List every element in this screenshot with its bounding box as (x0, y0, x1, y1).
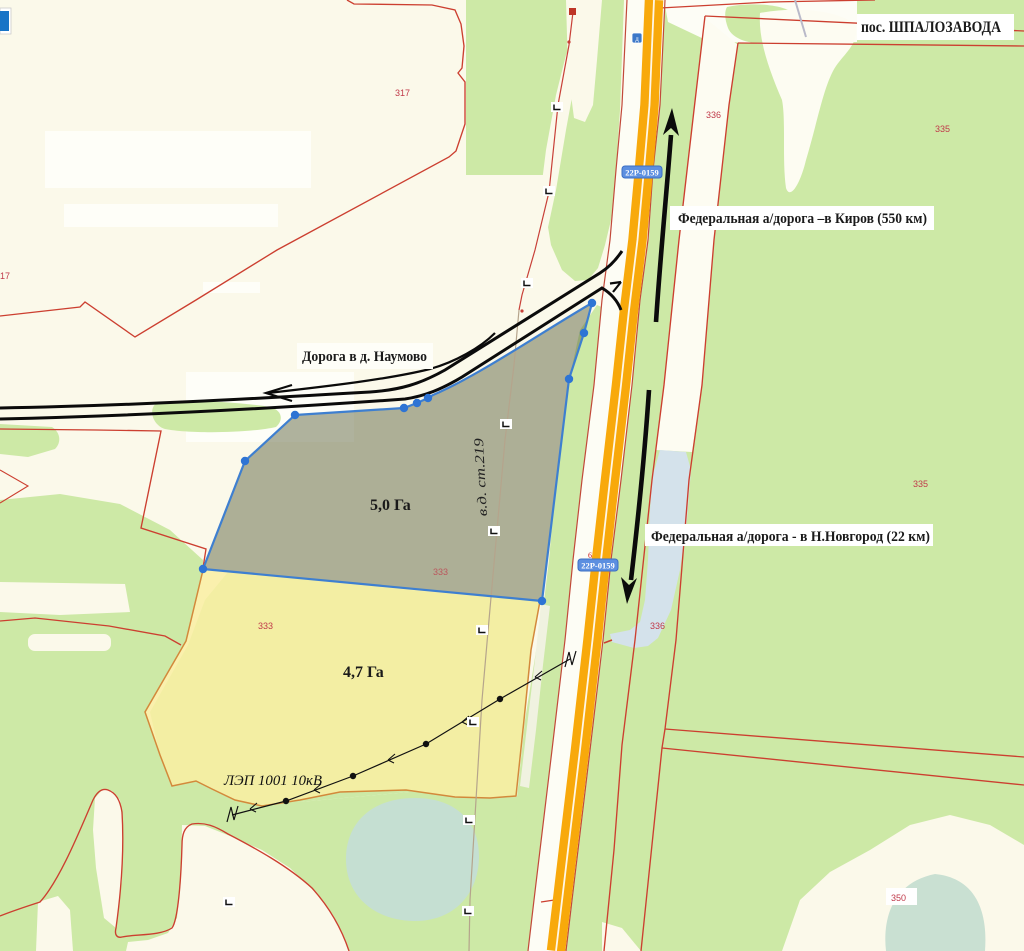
svg-text:5,0 Га: 5,0 Га (370, 497, 411, 514)
svg-text:335: 335 (913, 479, 928, 489)
svg-text:317: 317 (395, 88, 410, 98)
svg-text:Федеральная а/дорога –в Киров: Федеральная а/дорога –в Киров (550 км) (678, 211, 927, 227)
svg-text:Дорога в д. Наумово: Дорога в д. Наумово (302, 349, 427, 365)
svg-text:350: 350 (891, 893, 906, 903)
svg-text:6: 6 (588, 551, 592, 560)
svg-text:317: 317 (0, 271, 10, 281)
svg-text:22Р-0159: 22Р-0159 (625, 168, 659, 178)
svg-text:Федеральная а/дорога - в Н.Нов: Федеральная а/дорога - в Н.Новгород (22 … (651, 529, 930, 545)
svg-text:22Р-0159: 22Р-0159 (581, 561, 615, 571)
svg-text:336: 336 (706, 110, 721, 120)
svg-text:4,7 Га: 4,7 Га (343, 664, 384, 681)
svg-text:336: 336 (650, 621, 665, 631)
svg-text:335: 335 (935, 124, 950, 134)
svg-text:пос. ШПАЛОЗАВОДА: пос. ШПАЛОЗАВОДА (861, 19, 1001, 36)
svg-text:д: д (635, 35, 639, 43)
svg-text:333: 333 (258, 621, 273, 631)
svg-text:ЛЭП 1001 10кВ: ЛЭП 1001 10кВ (223, 773, 322, 789)
svg-text:333: 333 (433, 567, 448, 577)
